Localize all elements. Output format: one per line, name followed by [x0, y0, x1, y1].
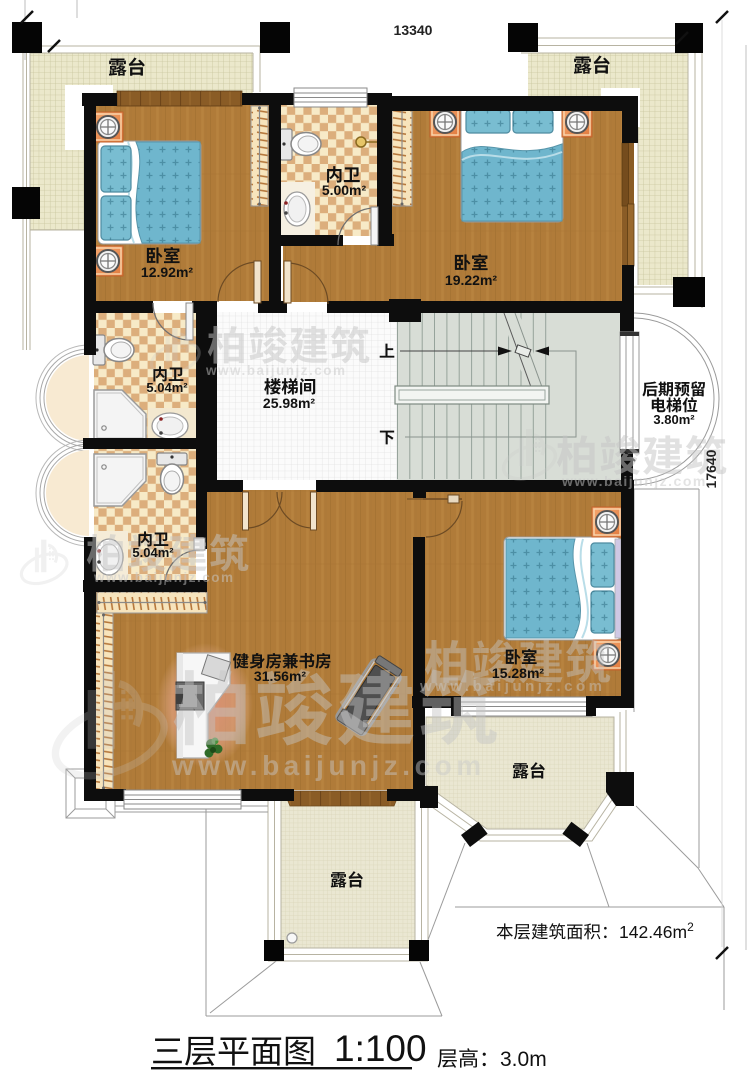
svg-text:19.22m²: 19.22m²	[445, 272, 497, 288]
svg-text:www.baijunjz.com: www.baijunjz.com	[93, 570, 235, 585]
svg-text:17640: 17640	[703, 449, 719, 488]
svg-text:3.80m²: 3.80m²	[653, 412, 695, 427]
svg-text:13340: 13340	[394, 22, 433, 38]
svg-text:3.0m: 3.0m	[500, 1048, 547, 1071]
svg-text:25.98m²: 25.98m²	[263, 395, 315, 411]
svg-text:5.04m²: 5.04m²	[132, 545, 174, 560]
svg-text:31.56m²: 31.56m²	[254, 668, 306, 684]
svg-text:12.92m²: 12.92m²	[141, 264, 193, 280]
svg-text:www.baijunjz.com: www.baijunjz.com	[205, 363, 347, 378]
svg-text:15.28m²: 15.28m²	[492, 665, 544, 681]
svg-text:5.00m²: 5.00m²	[322, 182, 367, 198]
svg-text:www.baijunjz.com: www.baijunjz.com	[171, 750, 486, 781]
svg-text:142.46m2: 142.46m2	[619, 920, 694, 942]
svg-text:1:100: 1:100	[334, 1028, 427, 1069]
svg-text:www.baijunjz.com: www.baijunjz.com	[561, 473, 707, 489]
svg-text:5.04m²: 5.04m²	[146, 380, 188, 395]
